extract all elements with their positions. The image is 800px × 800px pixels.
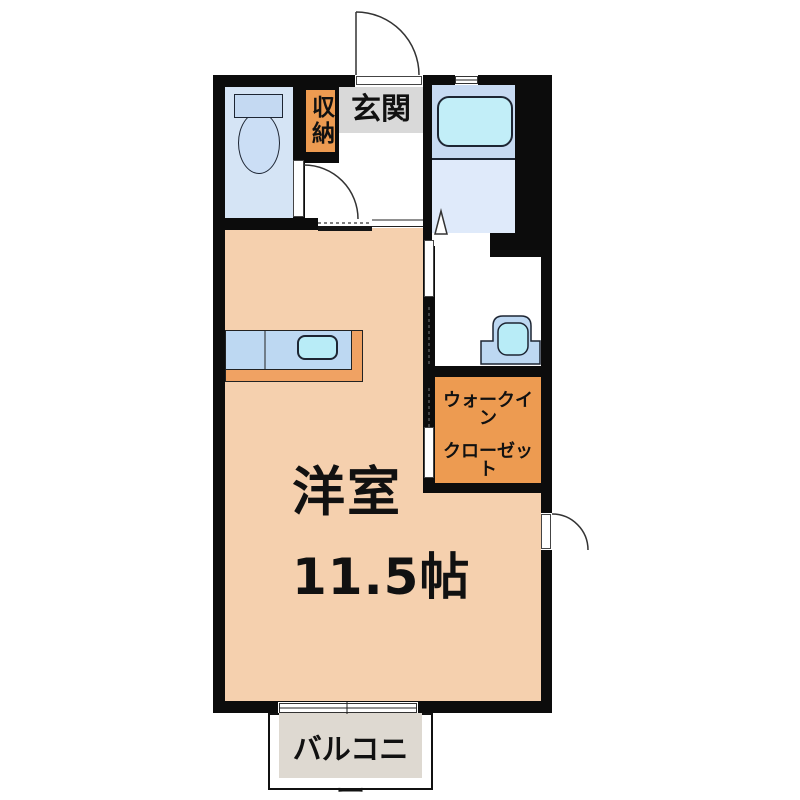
side-door	[541, 514, 551, 549]
toilet-icon	[238, 112, 280, 174]
bathtub-icon	[437, 96, 513, 147]
bathroom-window-frame	[455, 76, 478, 84]
entrance-door-arc-icon	[356, 12, 419, 75]
main-room-label: 洋室 11.5帖	[292, 450, 470, 609]
side-door-arc-icon	[552, 514, 588, 550]
wall-stub-1	[423, 297, 435, 307]
wall-toilet-main	[213, 218, 318, 230]
wic-label-line1: ウォークイン	[435, 392, 541, 428]
main-room-size: 11.5帖	[292, 537, 470, 609]
kitchen-sink-icon	[297, 335, 338, 360]
washroom-wall-notch	[490, 246, 541, 257]
balcony-label: バルコニー	[279, 726, 422, 800]
floor-plan: 玄関 収納 ウォークイン クローゼット 洋室 11.5帖 バルコニー	[0, 0, 800, 800]
main-room-name: 洋室	[292, 450, 470, 526]
washroom-sliding-door	[424, 240, 434, 297]
wall-washroom-wic	[423, 366, 541, 377]
storage-label: 収納	[302, 88, 339, 154]
wall-stub-2	[423, 366, 435, 388]
entrance-door	[356, 76, 422, 85]
balcony-sliding-window	[279, 703, 417, 713]
entrance-label: 玄関	[339, 87, 423, 133]
hallway-sliding-door	[318, 226, 372, 231]
bathroom-floor	[432, 160, 515, 233]
bathroom-doorstep	[432, 233, 490, 246]
toilet-door	[293, 160, 304, 217]
toilet-tank-icon	[234, 94, 283, 118]
washroom	[435, 246, 541, 366]
